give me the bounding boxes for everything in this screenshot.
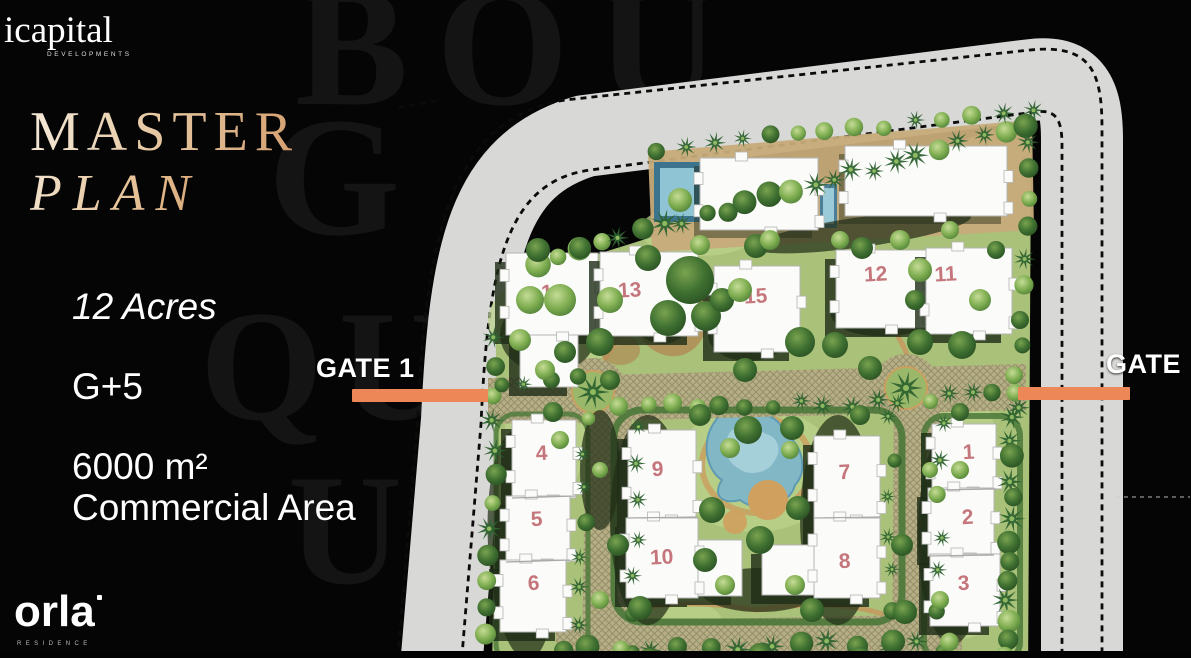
gate-1-label: GATE 1 <box>316 353 415 384</box>
building-number-label: 2 <box>961 506 974 530</box>
gate-1-marker <box>352 389 488 402</box>
bottom-crop-bar <box>0 652 1191 658</box>
building-number-label: 5 <box>530 508 543 532</box>
master-plan-slide: BOU G QUE U 141315121145691078123 GATE 1… <box>0 0 1191 658</box>
building-number-label: 4 <box>535 442 548 466</box>
building-number-label: 3 <box>957 572 970 596</box>
building-number-label: 11 <box>934 262 958 286</box>
gate-2-label: GATE <box>1106 349 1181 380</box>
building-number-label: 12 <box>863 262 888 286</box>
building-number-label: 8 <box>838 550 851 574</box>
building-number-label: 6 <box>527 572 540 596</box>
site-master-plan-map: 141315121145691078123 <box>0 0 1191 658</box>
building-number-label: 7 <box>838 461 851 485</box>
building-number-label: 1 <box>962 441 975 465</box>
gate-2-marker <box>1018 387 1130 400</box>
building-number-label: 9 <box>651 458 664 482</box>
building-number-label: 10 <box>649 545 674 569</box>
